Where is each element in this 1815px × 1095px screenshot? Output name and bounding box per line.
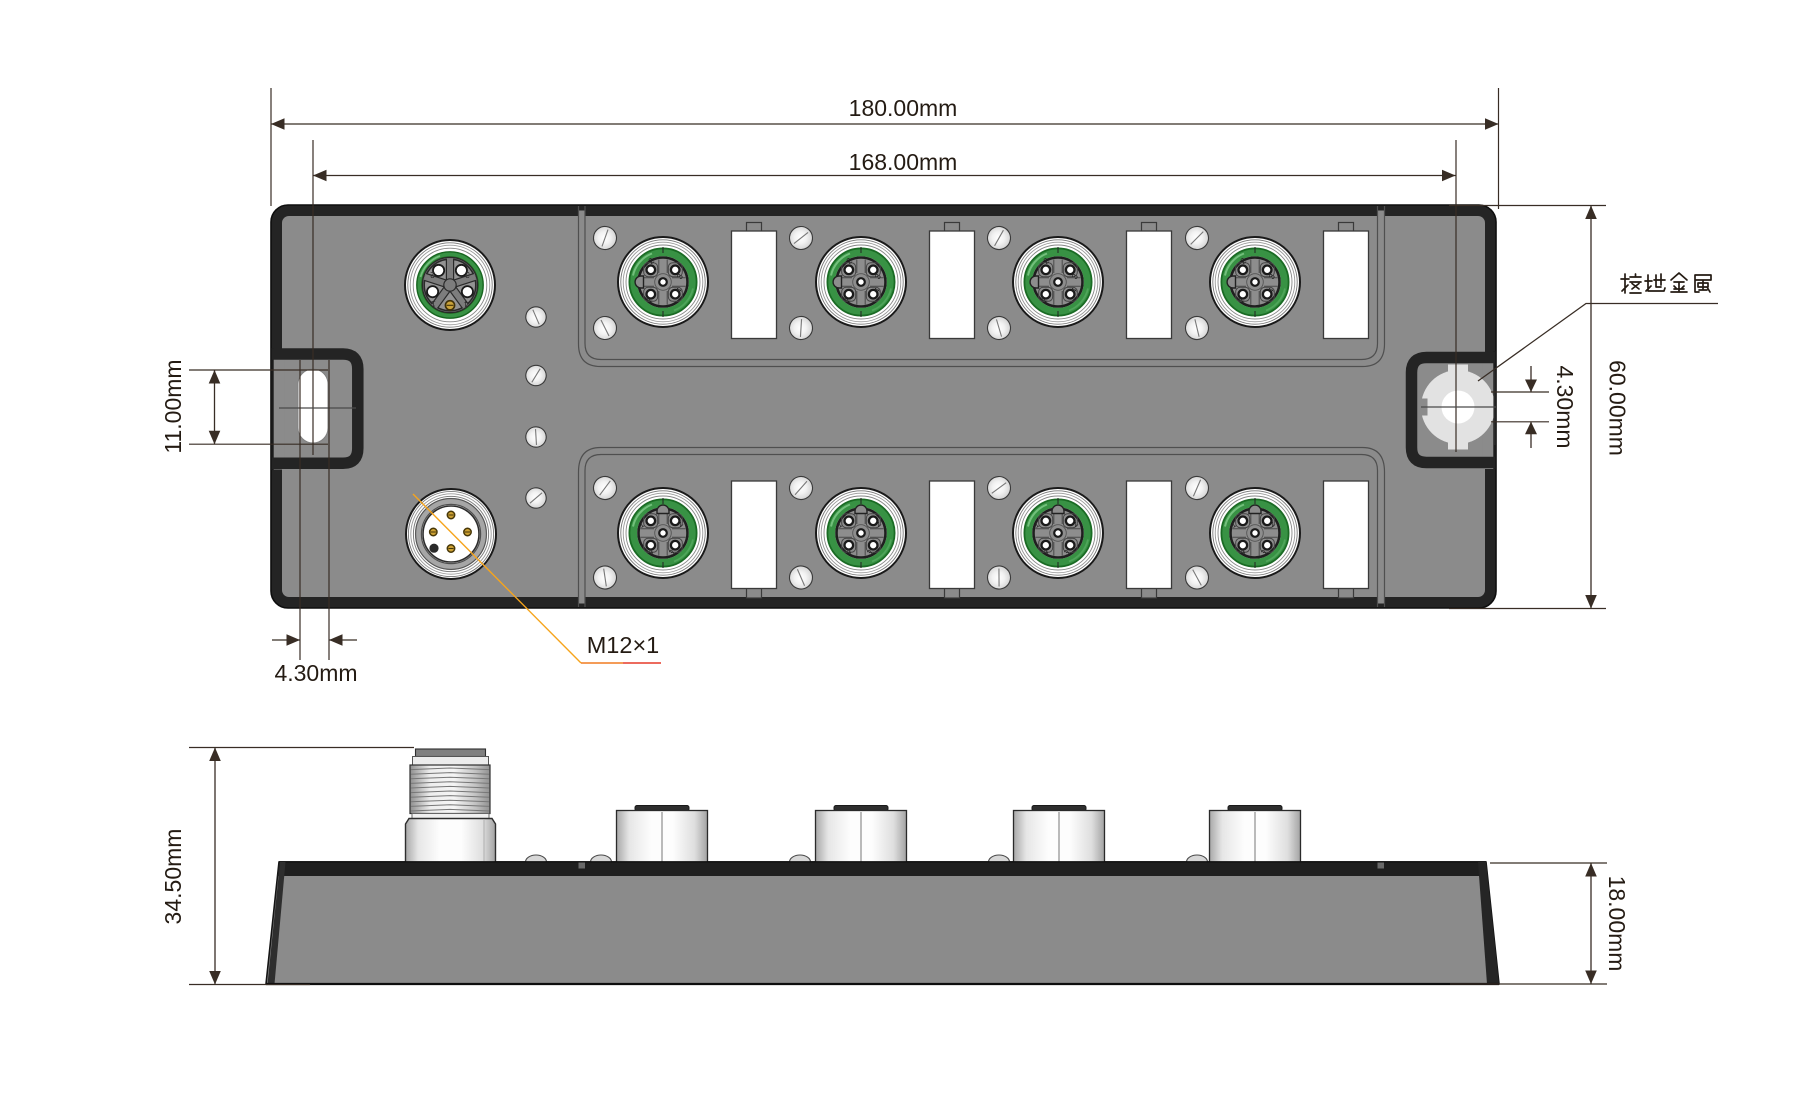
svg-text:M12×1: M12×1 (587, 632, 660, 658)
svg-text:4.30mm: 4.30mm (274, 660, 357, 686)
svg-text:4.30mm: 4.30mm (1552, 365, 1578, 448)
svg-text:180.00mm: 180.00mm (849, 95, 958, 121)
svg-text:168.00mm: 168.00mm (849, 149, 958, 175)
svg-text:3: 3 (465, 270, 470, 280)
svg-text:60.00mm: 60.00mm (1605, 360, 1631, 456)
svg-text:11.00mm: 11.00mm (160, 359, 186, 453)
svg-text:34.50mm: 34.50mm (160, 829, 186, 925)
svg-text:2: 2 (430, 270, 435, 280)
svg-text:4: 4 (464, 299, 469, 309)
svg-text:1: 1 (431, 299, 436, 309)
svg-text:18.00mm: 18.00mm (1604, 876, 1630, 972)
